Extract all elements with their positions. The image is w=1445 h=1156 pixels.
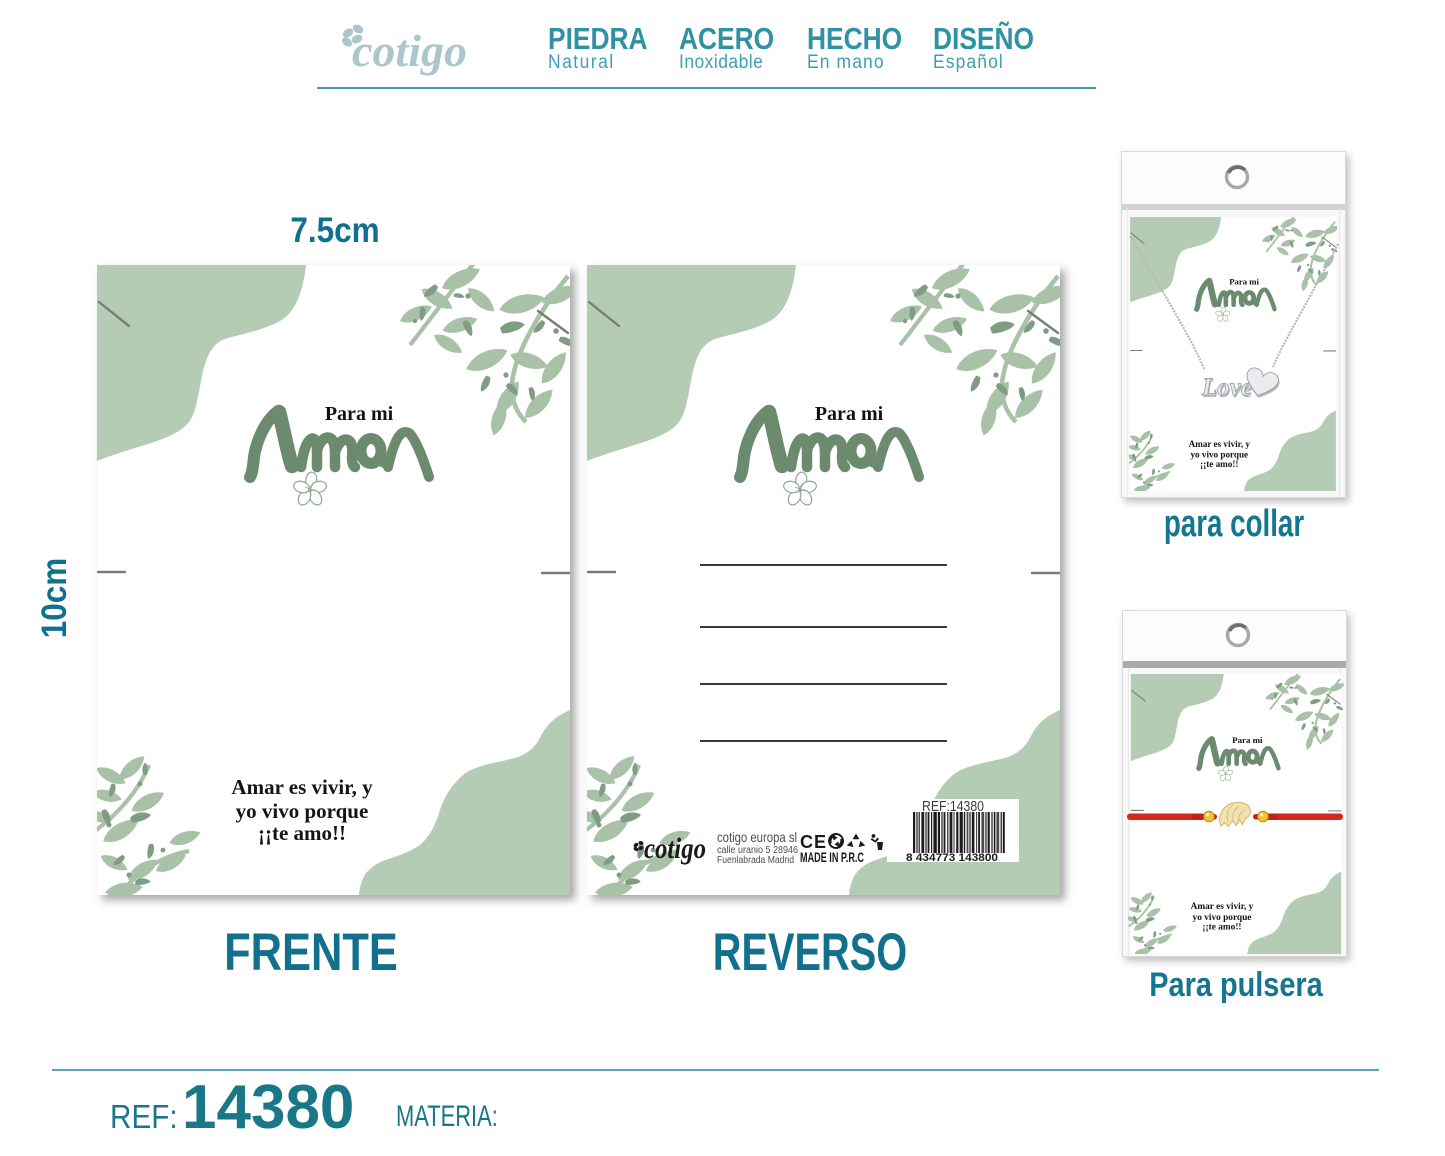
- svg-text:cotigo europa sl: cotigo europa sl: [717, 829, 797, 845]
- svg-text:cotigo: cotigo: [352, 25, 467, 76]
- svg-text:cotigo: cotigo: [644, 832, 706, 865]
- svg-text:MADE IN P.R.C: MADE IN P.R.C: [800, 849, 864, 865]
- svg-text:Fuenlabrada Madrid: Fuenlabrada Madrid: [717, 854, 794, 866]
- svg-text:Para mi: Para mi: [815, 403, 884, 425]
- svg-text:Love: Love: [1201, 374, 1252, 401]
- svg-text:8 434773 143800: 8 434773 143800: [906, 852, 998, 864]
